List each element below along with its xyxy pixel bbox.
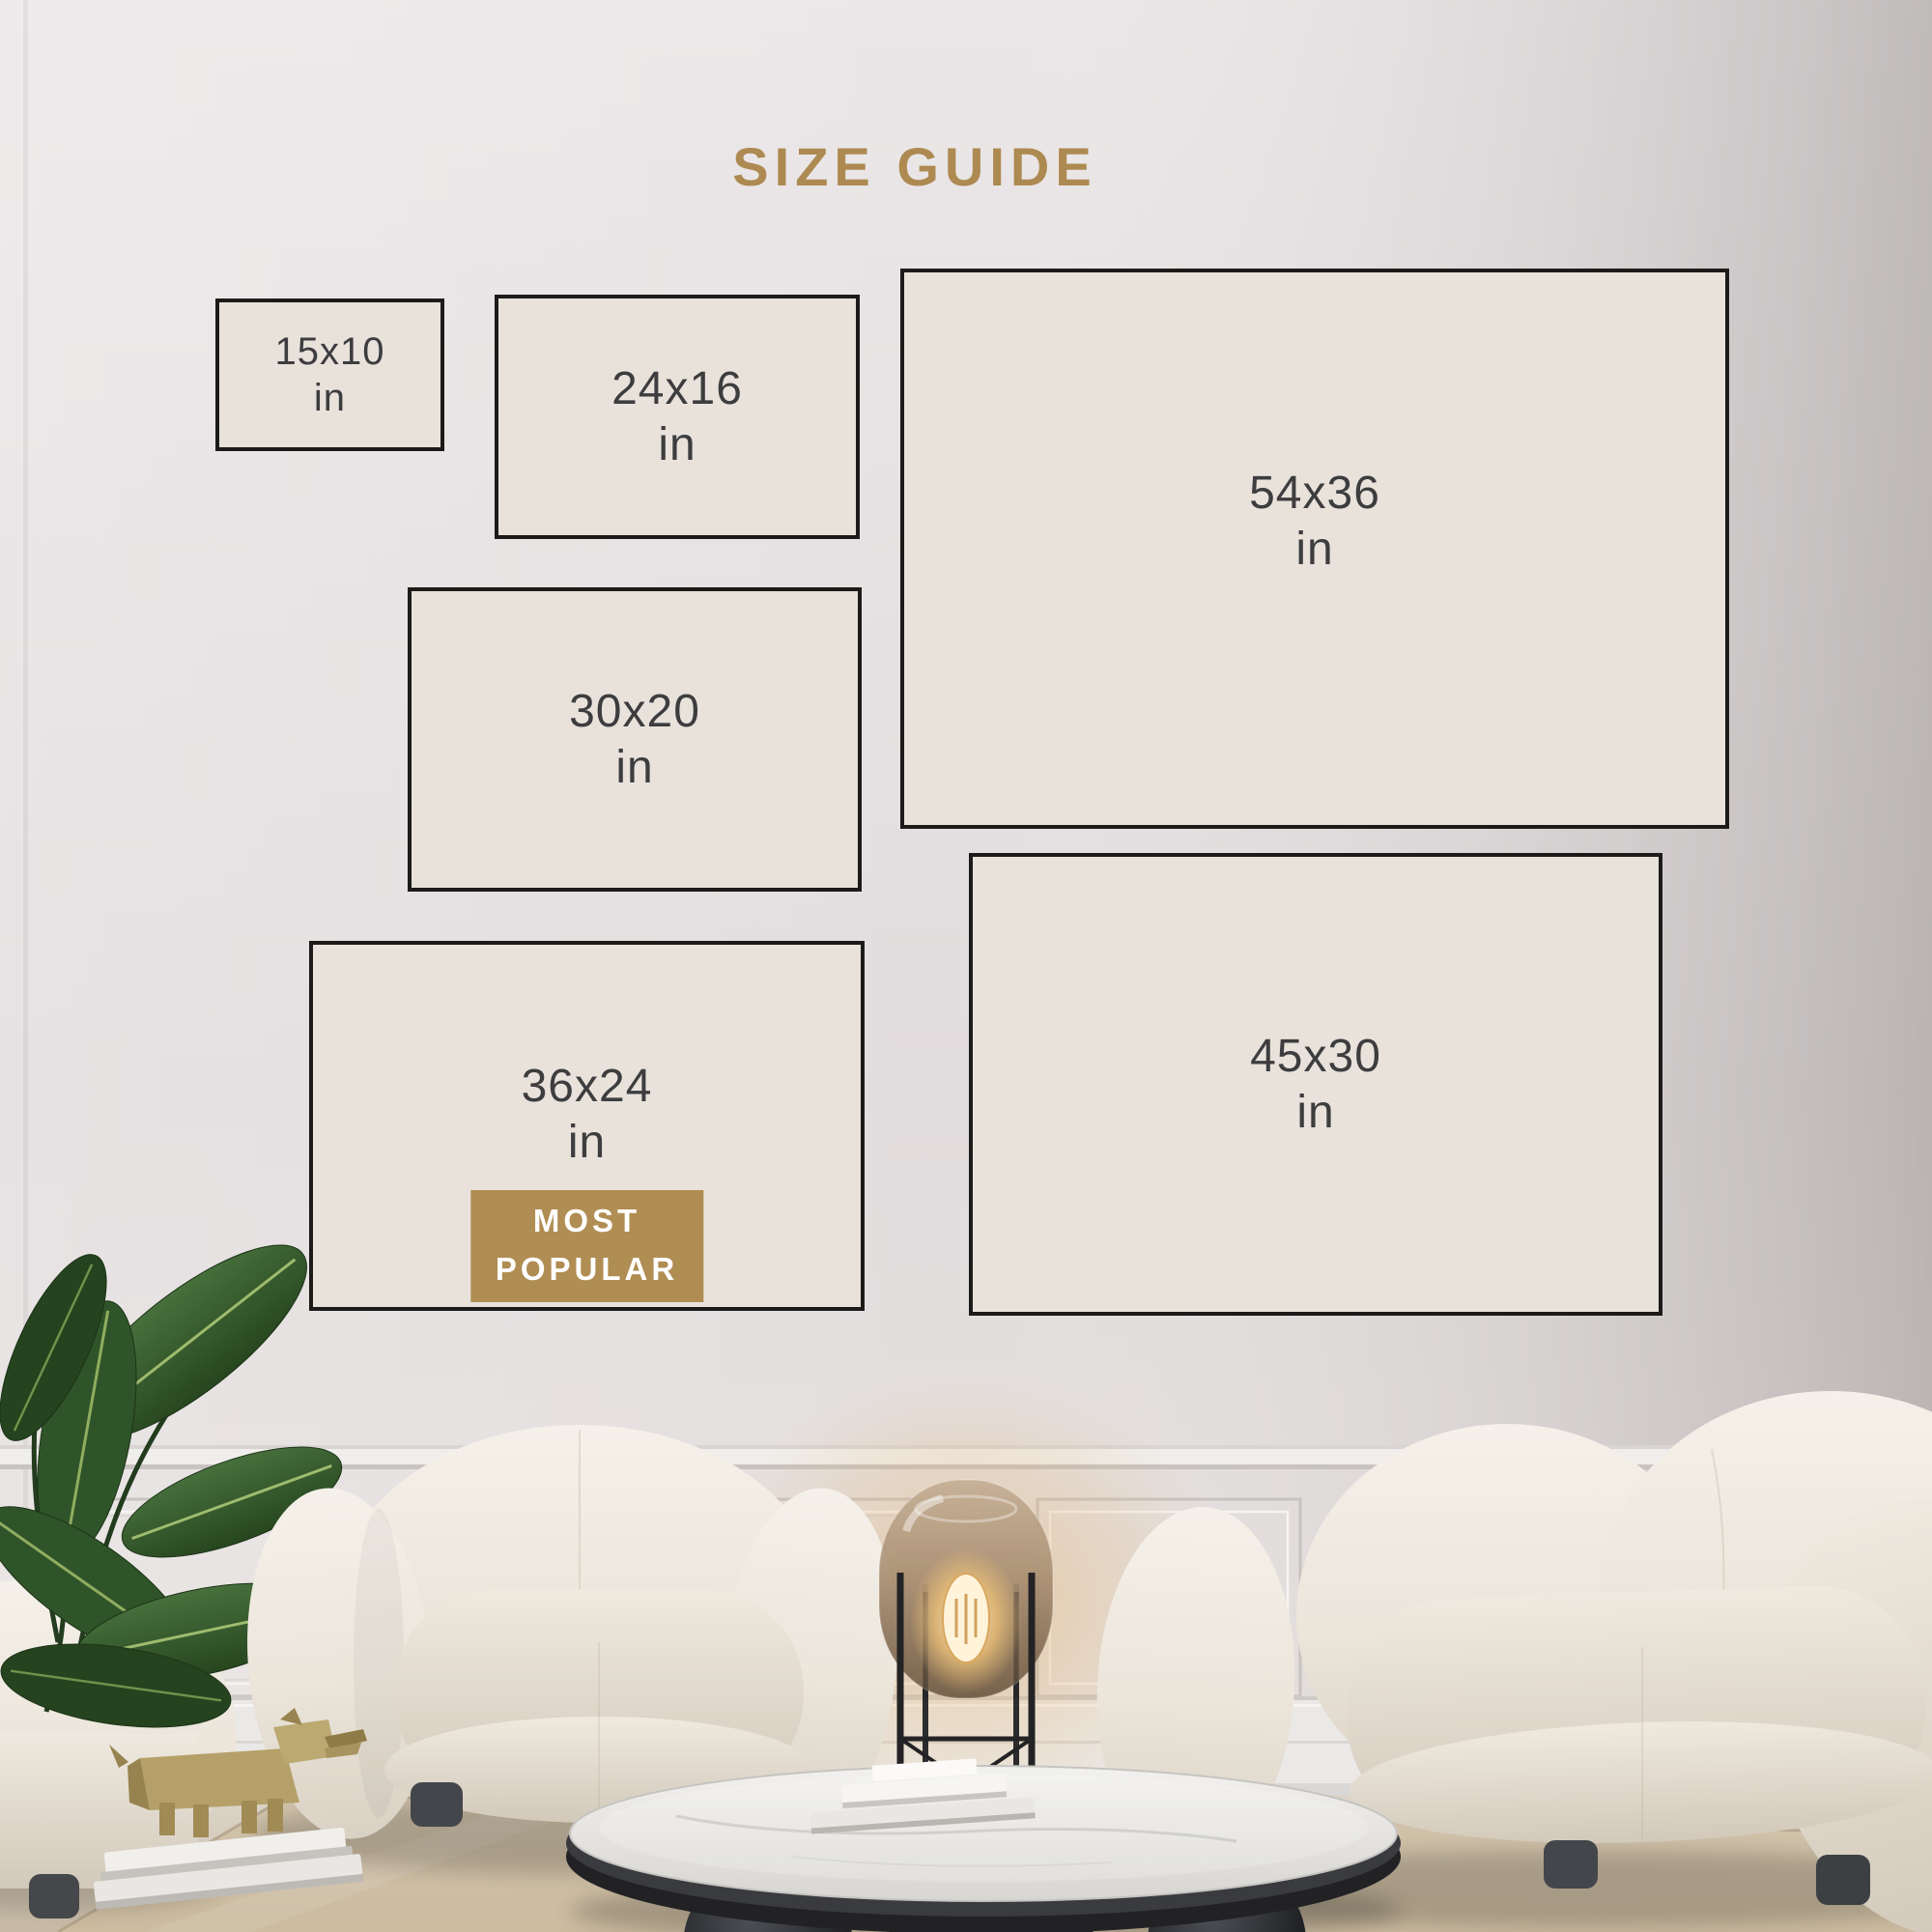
- size-label: 30x20 in: [569, 684, 700, 795]
- size-value: 45x30: [1250, 1029, 1381, 1085]
- size-unit: in: [522, 1115, 653, 1171]
- size-value: 30x20: [569, 684, 700, 740]
- size-label: 45x30 in: [1250, 1029, 1381, 1140]
- size-value: 15x10: [275, 328, 385, 375]
- size-box-15x10: 15x10 in: [215, 298, 444, 451]
- size-unit: in: [1250, 1085, 1381, 1141]
- badge-line-1: MOST: [496, 1197, 678, 1245]
- size-box-54x36: 54x36 in: [900, 269, 1729, 829]
- size-label: 15x10 in: [275, 328, 385, 421]
- size-label: 24x16 in: [611, 361, 743, 472]
- size-guide-title: SIZE GUIDE: [732, 135, 1096, 198]
- size-box-24x16: 24x16 in: [495, 295, 860, 539]
- size-guide-overlay: SIZE GUIDE 15x10 in 24x16 in 54x36 in 30…: [0, 0, 1932, 1932]
- size-box-30x20: 30x20 in: [408, 587, 862, 892]
- size-value: 36x24: [522, 1059, 653, 1115]
- size-box-36x24: 36x24 in MOST POPULAR: [309, 941, 865, 1311]
- size-box-45x30: 45x30 in: [969, 853, 1662, 1316]
- size-label: 54x36 in: [1249, 466, 1380, 577]
- size-unit: in: [275, 375, 385, 421]
- size-unit: in: [569, 740, 700, 796]
- size-unit: in: [1249, 522, 1380, 578]
- size-value: 54x36: [1249, 466, 1380, 522]
- size-unit: in: [611, 417, 743, 473]
- most-popular-badge: MOST POPULAR: [470, 1190, 703, 1302]
- size-label: 36x24 in: [522, 1059, 653, 1170]
- size-value: 24x16: [611, 361, 743, 417]
- badge-line-2: POPULAR: [496, 1245, 678, 1293]
- size-guide-mockup: SIZE GUIDE 15x10 in 24x16 in 54x36 in 30…: [0, 0, 1932, 1932]
